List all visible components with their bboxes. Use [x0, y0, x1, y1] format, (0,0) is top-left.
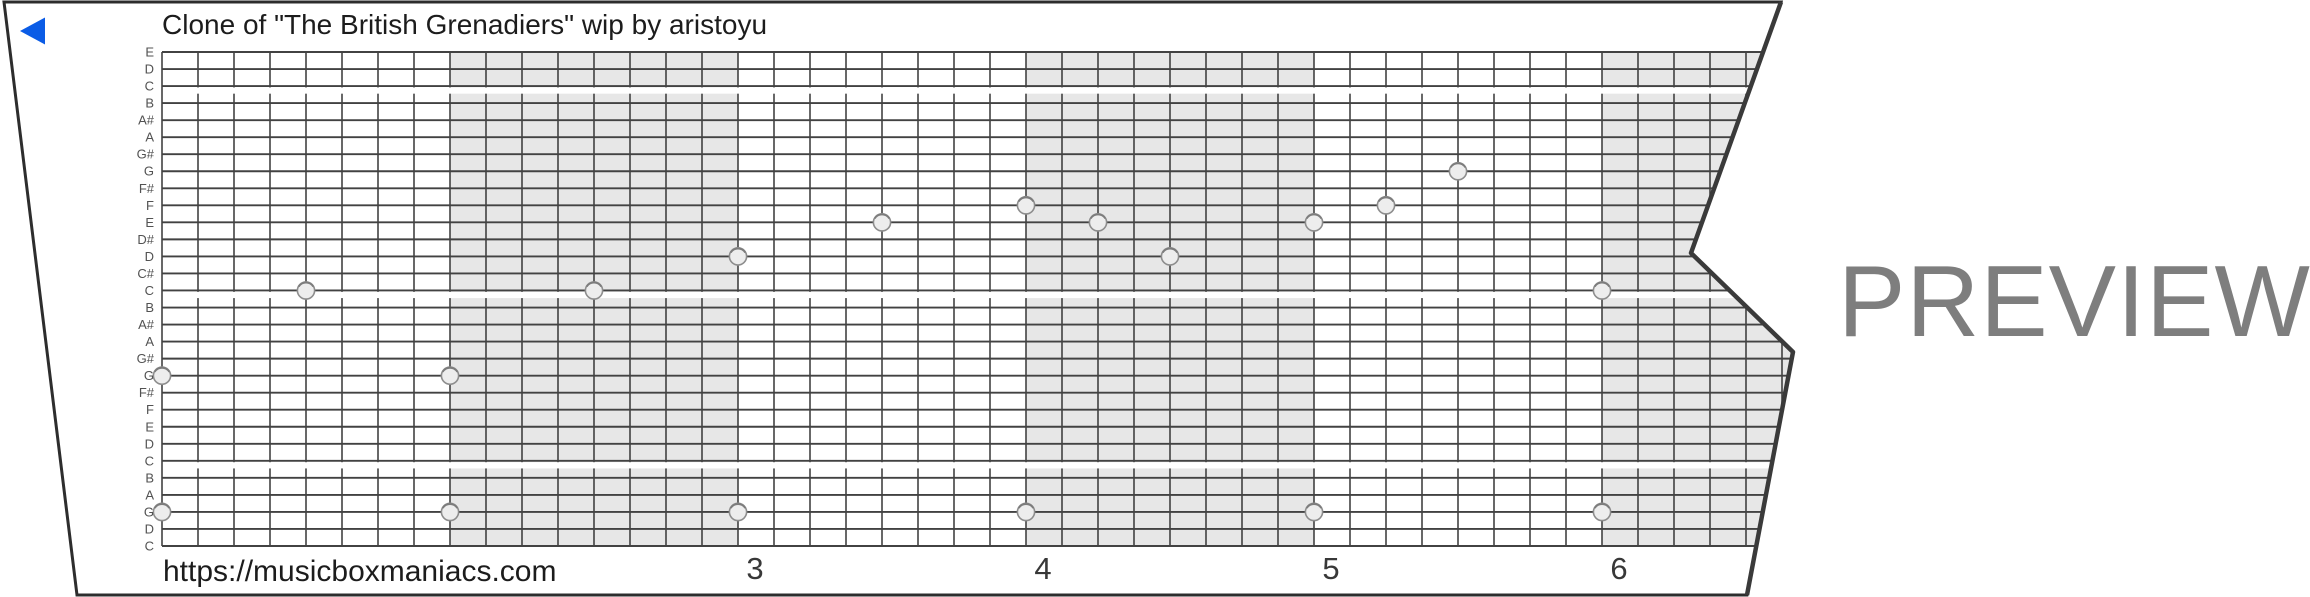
- octave-gap: [164, 462, 1812, 468]
- note-label: E: [145, 215, 154, 230]
- preview-watermark: PREVIEW: [1838, 246, 2310, 358]
- note-label: D#: [137, 232, 154, 247]
- octave-gap: [164, 87, 1812, 93]
- measure-number: 5: [1322, 551, 1339, 586]
- note-label: C: [145, 283, 154, 298]
- octave-gap: [164, 292, 1812, 298]
- note-label: F#: [139, 385, 155, 400]
- note-label: D: [145, 249, 154, 264]
- note-label: B: [145, 96, 154, 111]
- music-box-preview[interactable]: EDCBA#AG#GF#FED#DC#CBA#AG#GF#FEDCBAGDC 3…: [0, 0, 2310, 597]
- note-label: G: [144, 504, 154, 519]
- note-label: E: [145, 45, 154, 60]
- note-label: D: [145, 521, 154, 536]
- note-label: G#: [137, 147, 155, 162]
- note-label: C: [145, 539, 154, 554]
- note-label: A: [145, 487, 154, 502]
- note-label: G: [144, 164, 154, 179]
- measure-number: 6: [1610, 551, 1627, 586]
- note-label: F#: [139, 181, 155, 196]
- note-label: A#: [138, 317, 155, 332]
- note-label: D: [145, 62, 154, 77]
- note-label: G: [144, 368, 154, 383]
- note-label: C#: [137, 266, 154, 281]
- note-label: E: [145, 419, 154, 434]
- preview-canvas: EDCBA#AG#GF#FED#DC#CBA#AG#GF#FEDCBAGDC 3…: [0, 0, 2310, 597]
- note-label: C: [145, 453, 154, 468]
- note-label: A: [145, 130, 154, 145]
- measure-number: 4: [1034, 551, 1051, 586]
- note-label: B: [145, 470, 154, 485]
- note-label: G#: [137, 351, 155, 366]
- note-label: F: [146, 198, 154, 213]
- measure-number: 3: [746, 551, 763, 586]
- note-label: F: [146, 402, 154, 417]
- note-label: A#: [138, 113, 155, 128]
- note-label: C: [145, 79, 154, 94]
- note-label: D: [145, 436, 154, 451]
- note-label: B: [145, 300, 154, 315]
- site-url: https://musicboxmaniacs.com: [163, 555, 556, 588]
- note-label: A: [145, 334, 154, 349]
- melody-title: Clone of "The British Grenadiers" wip by…: [162, 9, 767, 40]
